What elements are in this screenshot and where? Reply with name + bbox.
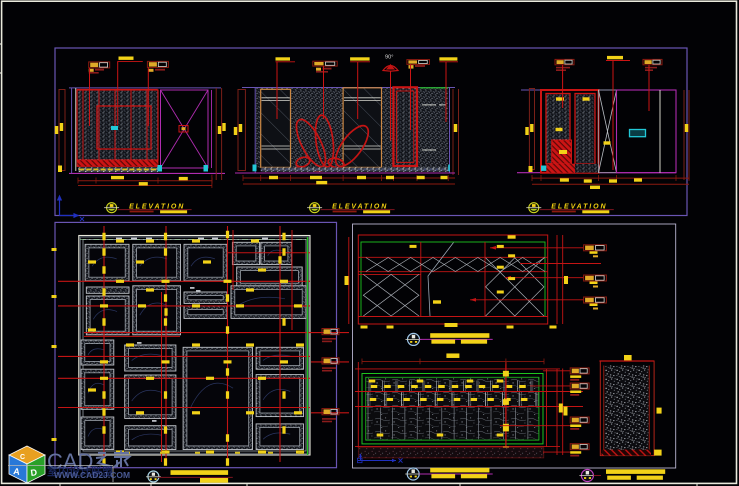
svg-text:ELEVATION: ELEVATION (129, 204, 185, 211)
svg-text:C: C (20, 454, 25, 461)
svg-text:90°: 90° (385, 55, 393, 61)
svg-text:WWW.CAD2J.COM: WWW.CAD2J.COM (54, 470, 130, 480)
svg-text:ELEVATION: ELEVATION (551, 204, 607, 211)
svg-text:ELEVATION: ELEVATION (332, 204, 388, 211)
